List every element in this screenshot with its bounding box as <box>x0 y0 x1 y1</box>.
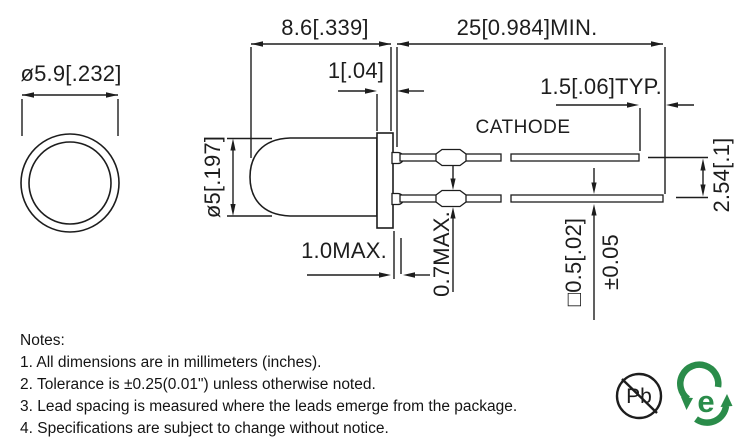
anode-lead <box>392 191 663 207</box>
standoff-max-label: 1.0MAX. <box>301 238 387 264</box>
cathode-lead <box>392 150 639 166</box>
lead-square-label: □0.5[.02] <box>561 218 587 306</box>
body-diameter-label: ø5[.197] <box>200 136 226 218</box>
notes-block: Notes: 1. All dimensions are in millimet… <box>20 330 517 440</box>
note-line: 3. Lead spacing is measured where the le… <box>20 396 517 418</box>
anode-lead-crimp <box>436 191 466 207</box>
crimp-max-label: 0.7MAX. <box>429 211 455 297</box>
body-circle <box>29 142 111 224</box>
body-length-label: 8.6[.339] <box>281 15 368 41</box>
lead-length-min-label: 25[0.984]MIN. <box>457 15 598 41</box>
flange-diameter-label: ø5.9[.232] <box>20 61 121 87</box>
lead-pitch-label: 2.54[.1] <box>709 138 735 213</box>
flange-circle <box>21 134 119 232</box>
led-dimension-drawing: ø5.9[.232] 8.6[.339] 25[0.984]MIN. 1[.04… <box>0 0 750 448</box>
pb-free-icon-text: Pb <box>626 385 652 409</box>
lead-tolerance-label: ±0.05 <box>598 234 624 290</box>
note-line: 2. Tolerance is ±0.25(0.01") unless othe… <box>20 374 517 396</box>
note-line: 1. All dimensions are in millimeters (in… <box>20 352 517 374</box>
flange-thickness-label: 1[.04] <box>328 58 384 84</box>
led-body <box>250 133 393 228</box>
epoxy-dome <box>250 138 377 216</box>
notes-title: Notes: <box>20 330 517 352</box>
flange <box>377 133 393 228</box>
top-view-dimension <box>22 95 118 136</box>
rohs-icon-text: e <box>697 384 714 420</box>
note-line: 4. Specifications are subject to change … <box>20 418 517 440</box>
cathode-lead-crimp <box>436 150 466 166</box>
lead-tip-typ-label: 1.5[.06]TYP. <box>540 74 662 100</box>
cathode-label: CATHODE <box>476 117 571 139</box>
top-view-circles <box>21 134 119 232</box>
